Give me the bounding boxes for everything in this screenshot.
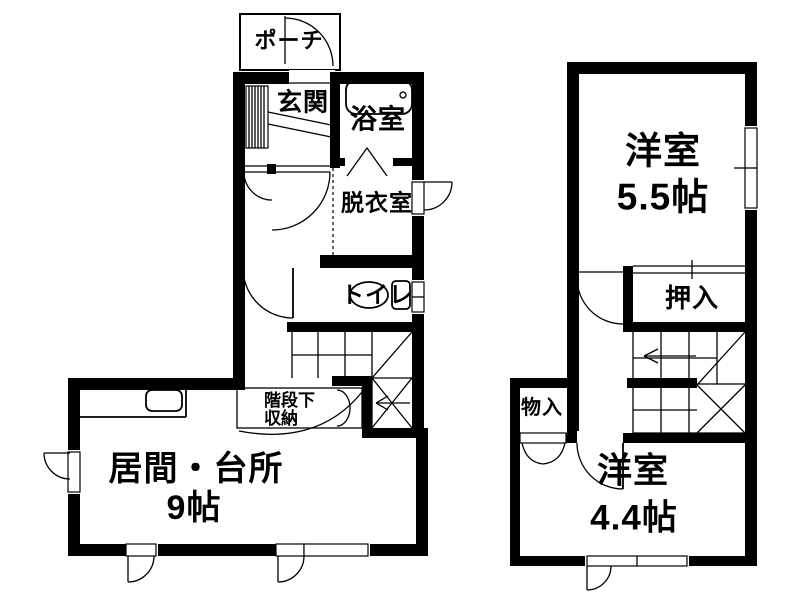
room-label-western-room-44: 洋室 xyxy=(597,454,669,489)
toilet-door-swing xyxy=(243,268,293,318)
room-label-porch: ポーチ xyxy=(254,30,323,52)
kitchen-counter-icon xyxy=(80,390,186,417)
door-swing xyxy=(272,172,330,230)
room-label-western-room-55: 洋室 xyxy=(625,133,701,170)
door-swing xyxy=(577,278,623,324)
right-window-icon xyxy=(734,128,757,208)
room-label-closet: 押入 xyxy=(665,285,719,311)
bottom-window-swing xyxy=(276,544,368,582)
door-swing xyxy=(244,172,272,200)
room-label-living-kitchen: 居間・台所 xyxy=(109,452,284,486)
bottom-window-swing xyxy=(126,544,156,582)
storage-double-door-swing xyxy=(520,433,566,464)
side-window-swing xyxy=(44,452,80,492)
closet-sliding-door-icon xyxy=(633,260,745,279)
room-label-toilet: トイレ xyxy=(341,284,413,307)
room-label-understair-storage-line1: 階段下 xyxy=(264,392,315,409)
room-label-western-room-44-size: 4.4帖 xyxy=(590,501,678,536)
room-label-understair-storage-line2: 収納 xyxy=(264,410,298,427)
bottom-window-swing xyxy=(587,556,687,590)
room-label-western-room-55-size: 5.5帖 xyxy=(617,179,709,216)
floorplan-canvas: ポーチ 玄関 浴室 脱衣室 トイレ 階段下 収納 居間・台所 9帖 洋室 5.5… xyxy=(0,0,800,600)
kitchen-sink-icon xyxy=(146,390,182,411)
room-label-bathroom: 浴室 xyxy=(350,107,406,134)
toilet-window-icon xyxy=(412,282,424,312)
stairs-direction-arrow xyxy=(376,396,410,410)
room-label-dressing-room: 脱衣室 xyxy=(341,192,413,215)
room-label-entrance: 玄関 xyxy=(277,91,329,116)
stairs-direction-arrow xyxy=(644,349,696,363)
room-label-living-kitchen-size: 9帖 xyxy=(167,491,222,525)
room-label-storage: 物入 xyxy=(521,398,563,418)
back-door-swing xyxy=(412,182,452,214)
shoe-cabinet-icon xyxy=(246,86,268,148)
door-swing xyxy=(337,390,350,408)
